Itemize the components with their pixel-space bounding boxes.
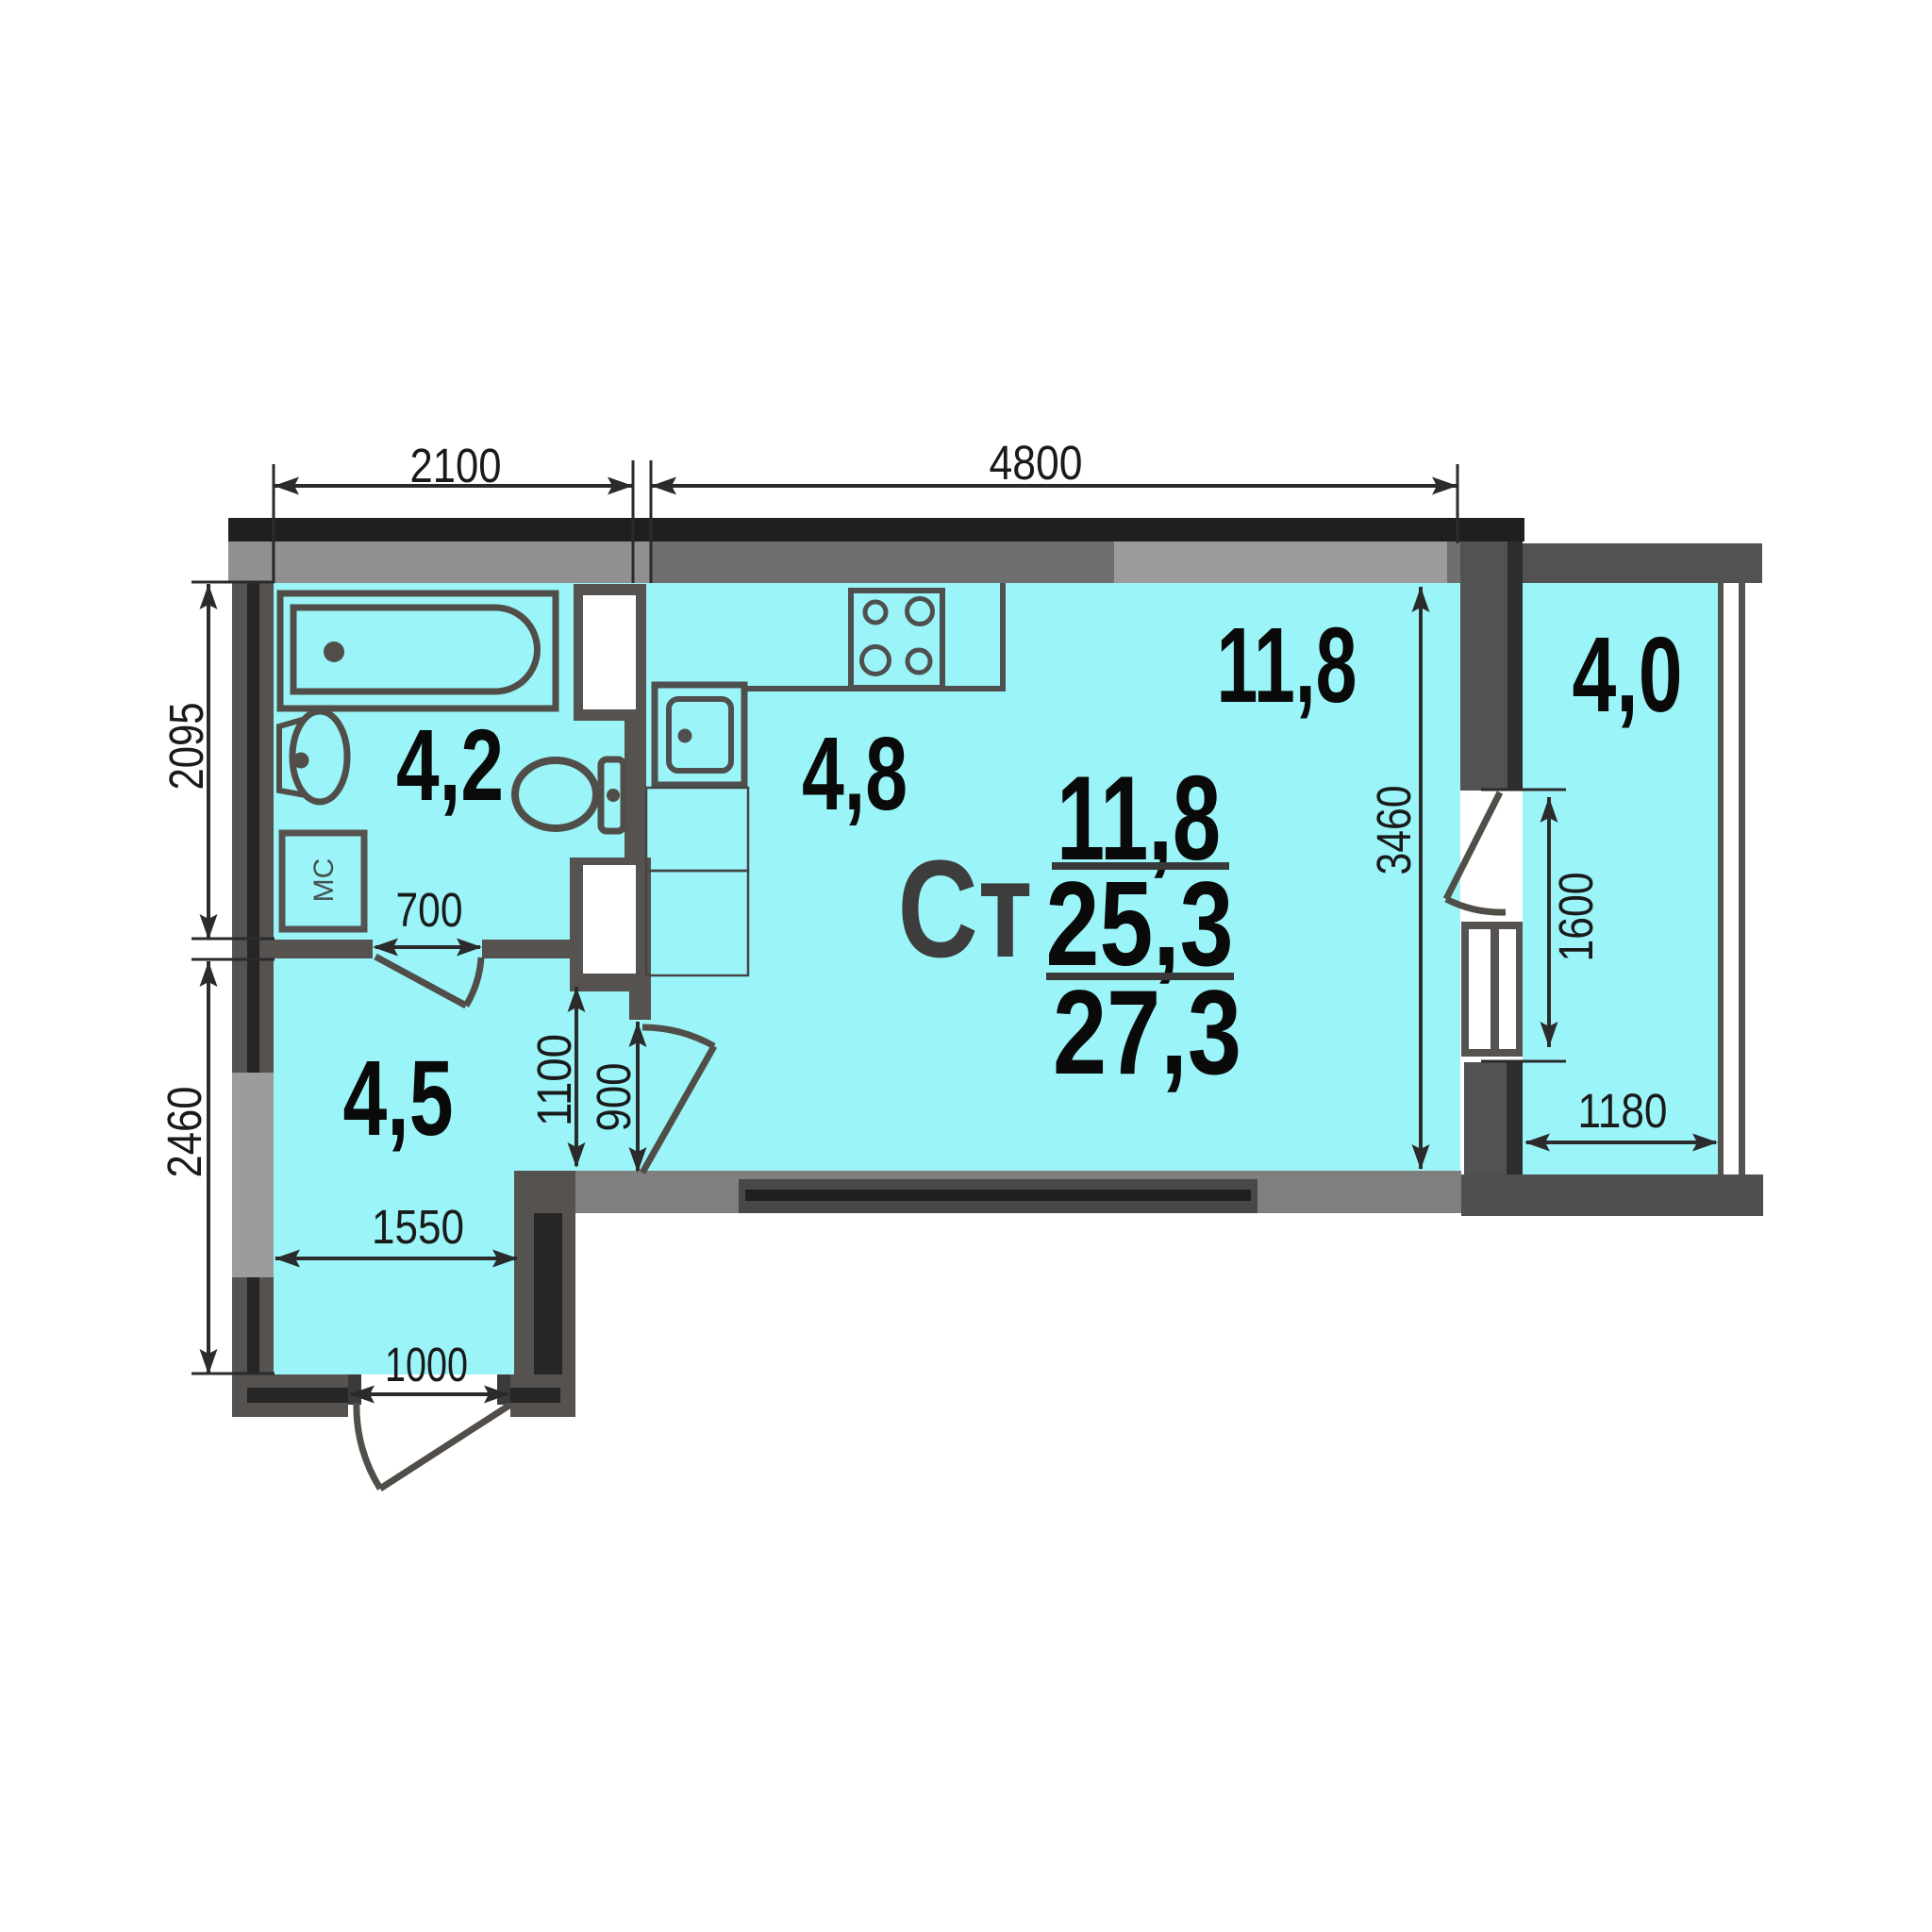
svg-text:1000: 1000: [385, 1338, 468, 1391]
svg-text:1600: 1600: [1549, 873, 1603, 962]
svg-text:2095: 2095: [159, 703, 213, 791]
svg-text:1180: 1180: [1578, 1084, 1668, 1138]
svg-text:3460: 3460: [1367, 786, 1421, 875]
svg-text:4,8: 4,8: [802, 716, 908, 832]
svg-text:4,5: 4,5: [343, 1039, 454, 1158]
svg-text:4800: 4800: [990, 436, 1083, 490]
svg-text:4,0: 4,0: [1573, 615, 1683, 734]
svg-text:700: 700: [396, 883, 463, 937]
svg-text:2460: 2460: [158, 1087, 211, 1178]
svg-text:4,2: 4,2: [396, 708, 504, 822]
svg-text:Ст: Ст: [898, 832, 1033, 987]
svg-text:МС: МС: [308, 858, 340, 903]
svg-text:11,8: 11,8: [1217, 606, 1357, 724]
svg-text:2100: 2100: [410, 439, 502, 492]
svg-text:1550: 1550: [372, 1200, 464, 1254]
svg-text:27,3: 27,3: [1053, 965, 1241, 1099]
svg-text:900: 900: [587, 1063, 641, 1132]
svg-text:1100: 1100: [527, 1034, 581, 1126]
